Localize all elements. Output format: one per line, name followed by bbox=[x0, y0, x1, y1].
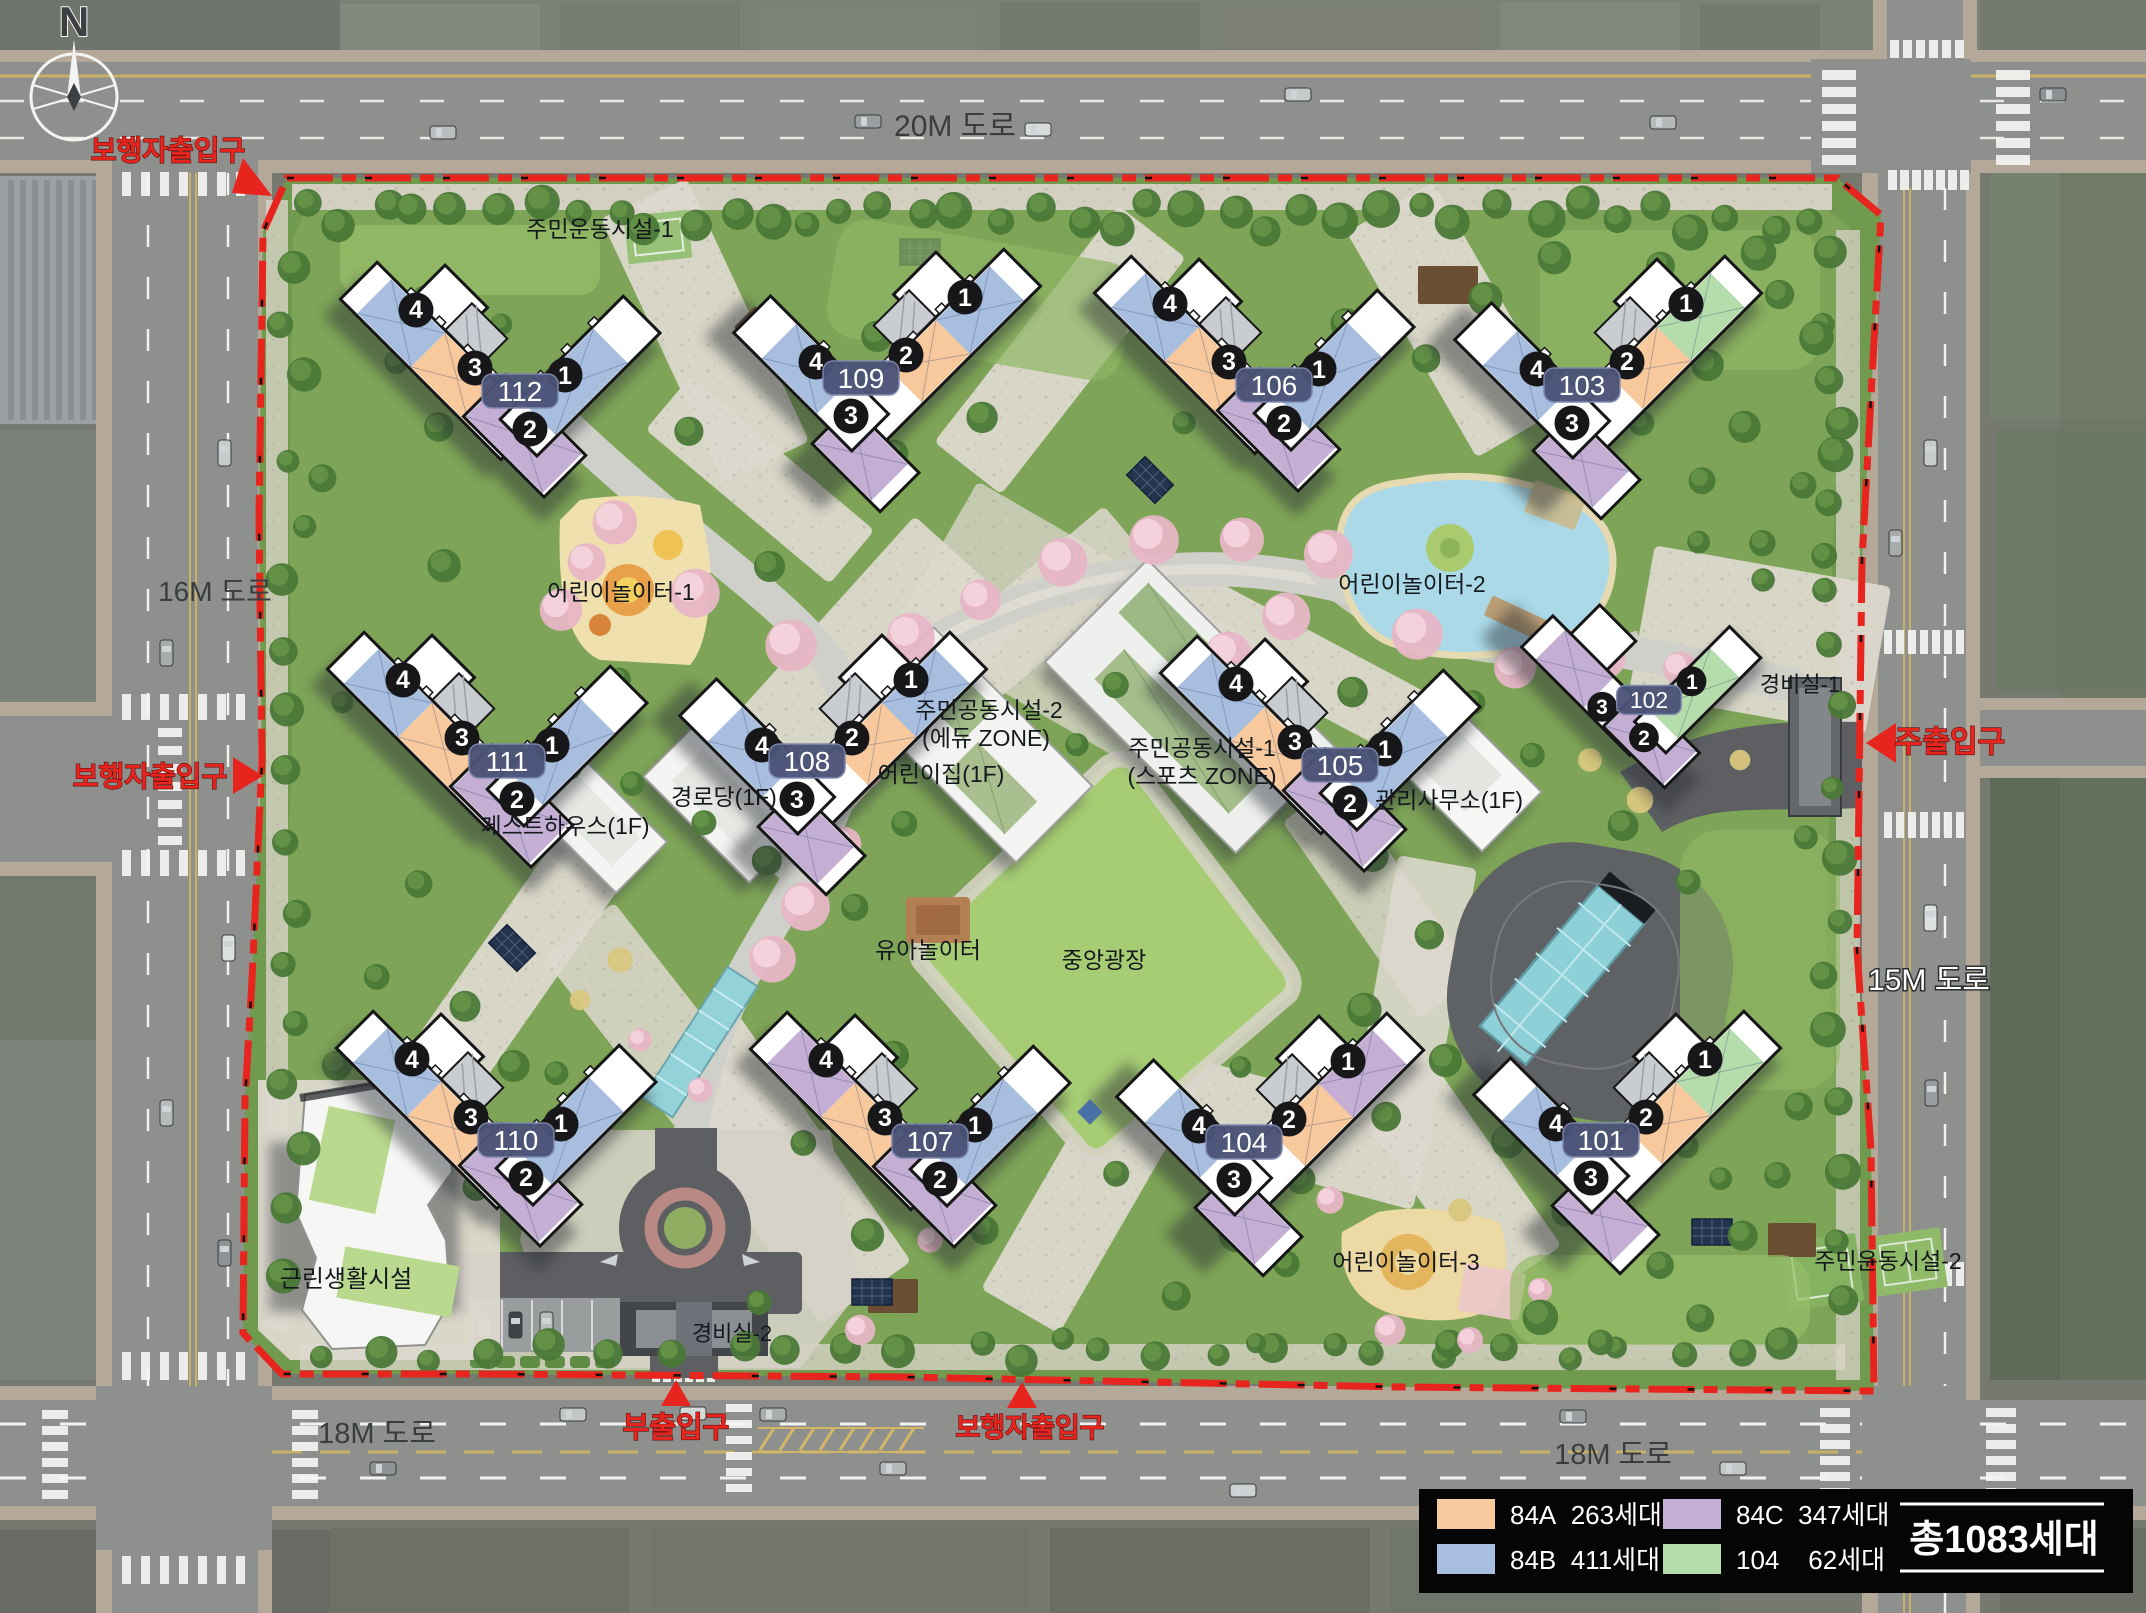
svg-text:2: 2 bbox=[1343, 790, 1357, 818]
svg-text:주민운동시설-1: 주민운동시설-1 bbox=[526, 216, 673, 242]
svg-text:4: 4 bbox=[755, 732, 769, 760]
svg-text:3: 3 bbox=[1227, 1166, 1241, 1194]
svg-text:유아놀이터: 유아놀이터 bbox=[875, 937, 981, 963]
svg-text:중앙광장: 중앙광장 bbox=[1062, 947, 1147, 973]
svg-text:주출입구: 주출입구 bbox=[1895, 726, 2005, 759]
svg-text:4: 4 bbox=[1530, 356, 1544, 384]
svg-text:4: 4 bbox=[1163, 290, 1177, 318]
svg-text:(스포츠 ZONE): (스포츠 ZONE) bbox=[1127, 763, 1276, 789]
svg-text:어린이놀이터-3: 어린이놀이터-3 bbox=[1332, 1249, 1479, 1275]
svg-text:1: 1 bbox=[554, 1110, 568, 1138]
svg-text:1: 1 bbox=[1378, 736, 1392, 764]
svg-text:1: 1 bbox=[968, 1112, 982, 1140]
svg-text:3: 3 bbox=[464, 1104, 478, 1132]
svg-text:109: 109 bbox=[838, 363, 885, 394]
svg-text:2: 2 bbox=[1638, 727, 1650, 750]
svg-text:3: 3 bbox=[455, 724, 469, 752]
svg-text:1: 1 bbox=[545, 732, 559, 760]
svg-text:105: 105 bbox=[1317, 750, 1364, 781]
svg-text:108: 108 bbox=[784, 746, 831, 777]
svg-text:2: 2 bbox=[845, 724, 859, 752]
svg-text:112: 112 bbox=[498, 376, 543, 407]
svg-text:20M 도로: 20M 도로 bbox=[894, 110, 1016, 143]
svg-text:어린이놀이터-1: 어린이놀이터-1 bbox=[547, 579, 694, 605]
svg-text:3: 3 bbox=[1288, 728, 1302, 756]
svg-text:106: 106 bbox=[1251, 370, 1298, 401]
svg-text:1: 1 bbox=[1686, 671, 1698, 694]
svg-text:2: 2 bbox=[1620, 348, 1634, 376]
svg-text:4: 4 bbox=[1549, 1110, 1563, 1138]
svg-text:N: N bbox=[59, 0, 89, 45]
svg-text:게스트하우스(1F): 게스트하우스(1F) bbox=[480, 813, 649, 839]
svg-text:3: 3 bbox=[878, 1104, 892, 1132]
svg-text:경비실-2: 경비실-2 bbox=[692, 1321, 772, 1346]
svg-text:(에듀 ZONE): (에듀 ZONE) bbox=[922, 725, 1050, 751]
svg-text:2: 2 bbox=[510, 786, 524, 814]
svg-text:111: 111 bbox=[486, 746, 529, 777]
svg-text:1: 1 bbox=[1698, 1046, 1712, 1074]
svg-text:1: 1 bbox=[1341, 1048, 1355, 1076]
svg-text:3: 3 bbox=[1565, 410, 1579, 438]
svg-text:보행자출입구: 보행자출입구 bbox=[91, 135, 246, 166]
svg-text:103: 103 bbox=[1559, 370, 1606, 401]
svg-text:경비실-1: 경비실-1 bbox=[1760, 672, 1840, 697]
svg-text:총1083세대: 총1083세대 bbox=[1909, 1519, 2098, 1561]
svg-text:부출입구: 부출입구 bbox=[623, 1411, 730, 1444]
svg-text:1: 1 bbox=[1312, 356, 1326, 384]
svg-text:1: 1 bbox=[1679, 290, 1693, 318]
svg-text:4: 4 bbox=[405, 1046, 419, 1074]
svg-text:관리사무소(1F): 관리사무소(1F) bbox=[1375, 787, 1523, 813]
svg-text:84C 347세대: 84C 347세대 bbox=[1736, 1500, 1889, 1530]
svg-text:104: 104 bbox=[1221, 1127, 1268, 1158]
svg-text:107: 107 bbox=[907, 1126, 954, 1157]
svg-text:101: 101 bbox=[1578, 1125, 1625, 1156]
svg-text:2: 2 bbox=[523, 416, 537, 444]
svg-text:4: 4 bbox=[409, 296, 423, 324]
svg-text:4: 4 bbox=[809, 348, 823, 376]
svg-text:2: 2 bbox=[1639, 1104, 1653, 1132]
svg-text:1: 1 bbox=[958, 284, 972, 312]
svg-text:2: 2 bbox=[519, 1164, 533, 1192]
svg-text:3: 3 bbox=[1584, 1164, 1598, 1192]
svg-text:2: 2 bbox=[933, 1166, 947, 1194]
svg-text:16M 도로: 16M 도로 bbox=[158, 576, 272, 607]
svg-text:18M 도로: 18M 도로 bbox=[1554, 1439, 1672, 1471]
svg-text:3: 3 bbox=[1596, 696, 1608, 719]
svg-text:주민공동시설-1: 주민공동시설-1 bbox=[1128, 735, 1275, 761]
svg-text:3: 3 bbox=[468, 354, 482, 382]
svg-text:4: 4 bbox=[819, 1046, 833, 1074]
svg-text:84A 263세대: 84A 263세대 bbox=[1510, 1500, 1662, 1530]
svg-text:3: 3 bbox=[844, 402, 858, 430]
svg-text:어린이놀이터-2: 어린이놀이터-2 bbox=[1338, 571, 1485, 597]
svg-text:18M 도로: 18M 도로 bbox=[318, 1418, 436, 1450]
svg-text:주민공동시설-2: 주민공동시설-2 bbox=[915, 697, 1062, 723]
svg-text:15M 도로: 15M 도로 bbox=[1868, 964, 1990, 997]
svg-text:2: 2 bbox=[1277, 410, 1291, 438]
svg-text:2: 2 bbox=[899, 342, 913, 370]
svg-text:경로당(1F): 경로당(1F) bbox=[671, 784, 777, 810]
svg-text:3: 3 bbox=[790, 786, 804, 814]
svg-text:110: 110 bbox=[494, 1125, 539, 1156]
svg-text:4: 4 bbox=[396, 666, 410, 694]
svg-text:주민운동시설-2: 주민운동시설-2 bbox=[1814, 1248, 1961, 1274]
svg-text:104 62세대: 104 62세대 bbox=[1736, 1545, 1885, 1575]
svg-text:4: 4 bbox=[1192, 1112, 1206, 1140]
svg-text:근린생활시설: 근린생활시설 bbox=[280, 1266, 412, 1293]
svg-text:보행자출입구: 보행자출입구 bbox=[73, 761, 228, 792]
svg-text:어린이집(1F): 어린이집(1F) bbox=[878, 761, 1005, 787]
svg-text:1: 1 bbox=[904, 666, 918, 694]
svg-text:1: 1 bbox=[558, 362, 572, 390]
svg-text:3: 3 bbox=[1222, 348, 1236, 376]
svg-text:84B 411세대: 84B 411세대 bbox=[1510, 1545, 1660, 1575]
svg-text:2: 2 bbox=[1282, 1106, 1296, 1134]
svg-text:4: 4 bbox=[1229, 670, 1243, 698]
svg-text:102: 102 bbox=[1630, 687, 1668, 713]
svg-text:보행자출입구: 보행자출입구 bbox=[955, 1413, 1104, 1443]
